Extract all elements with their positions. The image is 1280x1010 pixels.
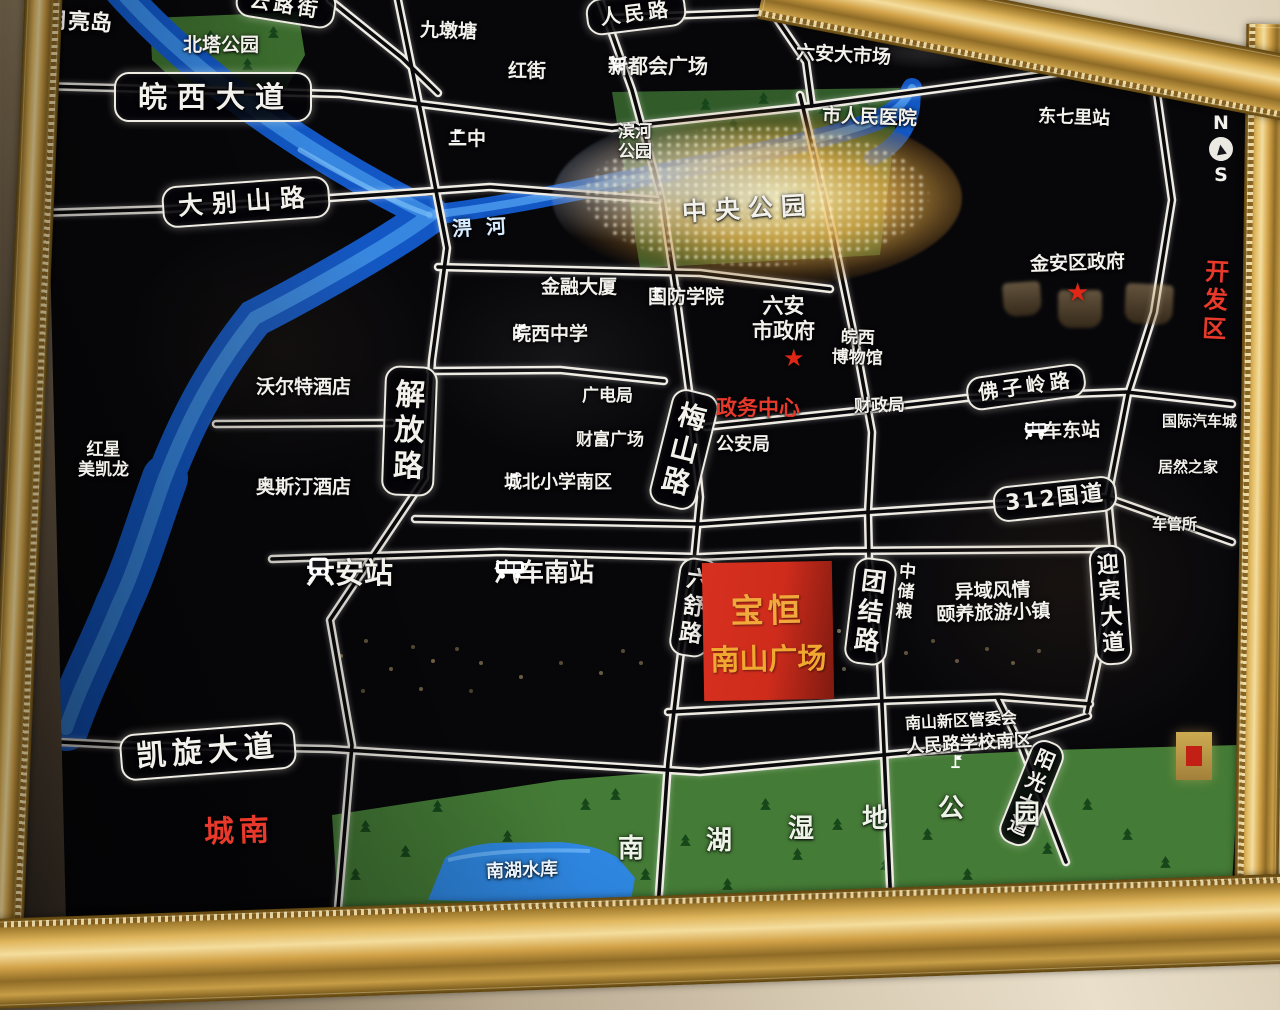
label-vehicle-admin-office: 车管所 <box>1152 516 1197 534</box>
label-south-bus-station: 汽车南站 <box>494 558 594 588</box>
wetland-char-shi: 湿 <box>788 814 814 845</box>
school-icon <box>648 286 663 301</box>
train-icon <box>306 556 332 582</box>
label-radio-tv-bureau: 广电局 <box>582 386 633 406</box>
bus-icon <box>494 558 526 580</box>
label-finance-bureau: 财政局 <box>854 395 906 417</box>
compass-needle: ▲ <box>1207 135 1235 163</box>
wetland-char-yuan: 园 <box>1014 800 1040 831</box>
project-name-line1: 宝恒 <box>730 583 805 632</box>
label-hongjie: 红街 <box>508 60 546 82</box>
label-intl-auto-city: 国际汽车城 <box>1162 413 1237 431</box>
wetland-char-di: 地 <box>862 804 888 835</box>
school-icon <box>948 754 963 769</box>
jinan-district-star: ★ <box>1066 278 1089 308</box>
label-no2-middle-school: 二中 <box>448 128 486 150</box>
road-label-wanxi-avenue: 皖西大道 <box>114 72 312 122</box>
framed-city-map: 皖西大道 大别山路 凯旋大道 312国道 佛子岭路 人民路 云路街 解放路 梅山… <box>0 0 1280 960</box>
label-beita-park: 北塔公园 <box>183 34 259 56</box>
label-government-affairs-center: 政务中心 <box>716 396 800 421</box>
label-development-zone: 开发区 <box>1200 257 1232 343</box>
wetland-char-nan: 南 <box>618 834 644 865</box>
label-jinan-district-government: 金安区政府 <box>1030 250 1126 276</box>
shopping-cart-icon <box>608 55 627 72</box>
label-exotic-tourism-town: 异域风情颐养旅游小镇 <box>935 578 1051 627</box>
label-east-bus-station: 汽车东站 <box>1024 419 1101 444</box>
compass: N ▲ S <box>1206 112 1236 186</box>
label-austin-hotel: 奥斯汀酒店 <box>256 476 351 498</box>
label-public-security-bureau: 公安局 <box>716 434 770 455</box>
label-juran-home: 居然之家 <box>1158 459 1218 477</box>
label-chengnan: 城南 <box>203 813 274 851</box>
city-government-star: ★ <box>783 344 805 372</box>
label-jiuduntang: 九墩塘 <box>420 19 478 43</box>
project-name-line2: 南山广场 <box>710 635 827 679</box>
compass-south-label: S <box>1206 164 1236 186</box>
label-finance-tower: 金融大厦 <box>541 276 617 298</box>
compass-north-label: N <box>1206 112 1236 134</box>
project-marker-baoheng-nanshan-plaza: 宝恒 南山广场 <box>702 561 834 701</box>
road-label-jiefang-road: 解放路 <box>381 365 438 497</box>
bus-icon <box>1024 420 1049 438</box>
wetland-char-hu: 湖 <box>706 826 732 857</box>
label-fortune-plaza: 财富广场 <box>576 430 644 450</box>
school-icon <box>512 323 527 338</box>
label-xinduhui-plaza: 新都会广场 <box>608 55 708 79</box>
label-national-defense-college: 国防学院 <box>648 286 724 308</box>
label-wanxi-middle-school: 皖西中学 <box>512 323 588 345</box>
label-city-people-hospital: 市人民医院 <box>822 104 918 130</box>
label-city-government: 六安市政府 <box>752 294 815 344</box>
frame-left <box>0 0 63 988</box>
school-icon <box>448 128 463 143</box>
label-hongxing-meikailong: 红星美凯龙 <box>78 440 129 480</box>
model-lights-reflection <box>0 0 2 2</box>
label-binhe-park: 滨河公园 <box>618 122 652 162</box>
school-icon <box>504 472 519 487</box>
label-liuan-railway-station: 六安站 <box>306 556 393 590</box>
label-wanxi-museum: 皖西博物馆 <box>831 327 883 369</box>
wetland-char-gong: 公 <box>938 794 964 825</box>
river-label-pihe: 淠河 <box>451 214 520 241</box>
label-chengbei-primary-school: 城北小学南区 <box>504 472 612 493</box>
label-nanhu-reservoir: 南湖水库 <box>486 859 559 883</box>
label-walter-hotel: 沃尔特酒店 <box>256 376 351 398</box>
label-dongqili-station: 东七里站 <box>1038 106 1111 130</box>
